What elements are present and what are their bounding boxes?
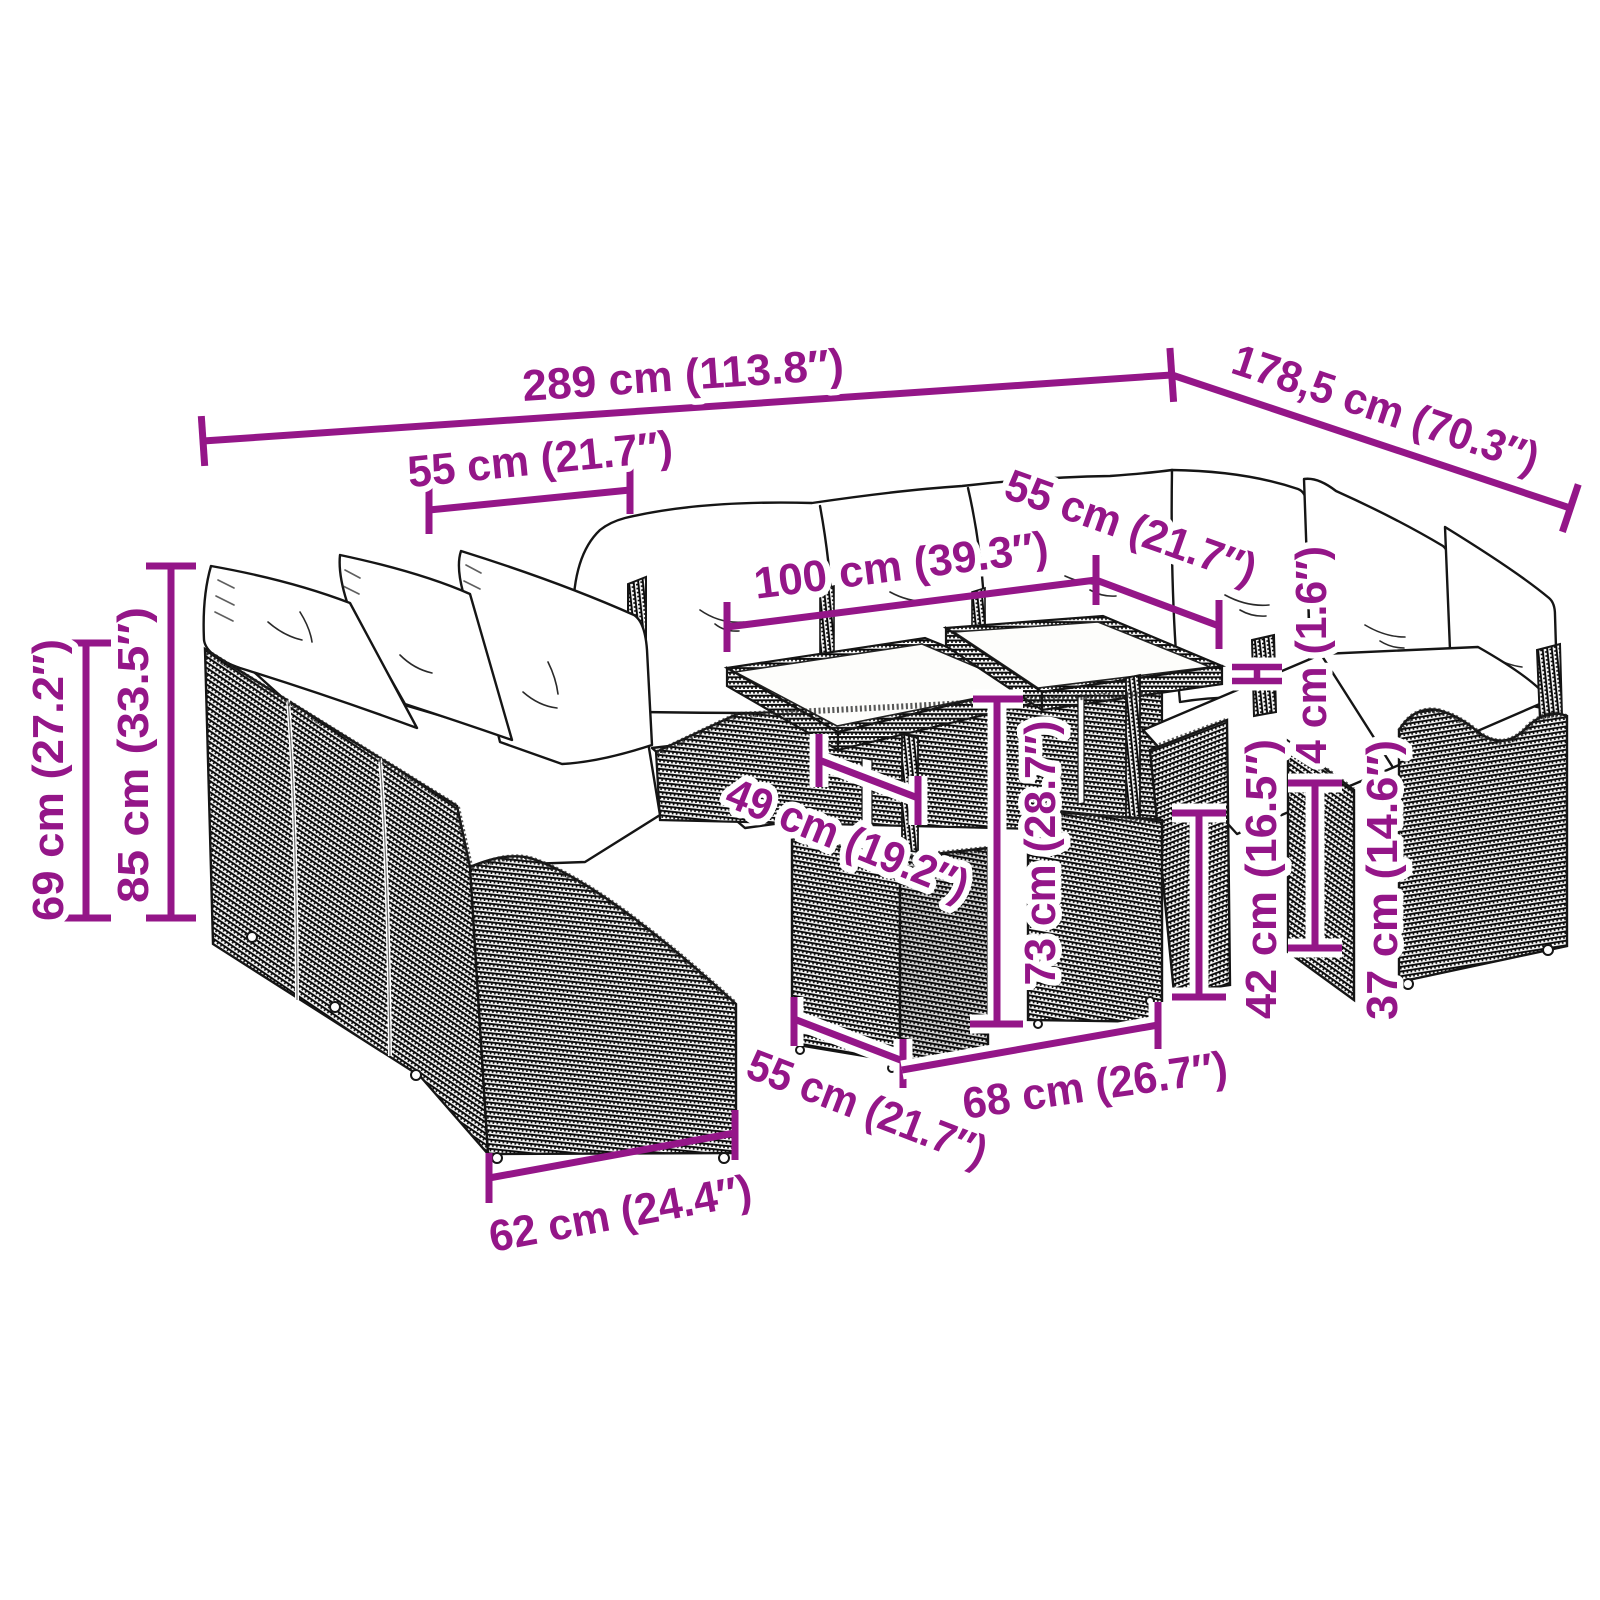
svg-text:73 cm (28.7″): 73 cm (28.7″) <box>1016 721 1065 986</box>
svg-text:37 cm (14.6″): 37 cm (14.6″) <box>1358 740 1407 1020</box>
svg-text:69 cm (27.2″): 69 cm (27.2″) <box>24 639 73 921</box>
svg-text:85 cm (33.5″): 85 cm (33.5″) <box>109 607 158 903</box>
svg-text:4 cm (1.6″): 4 cm (1.6″) <box>1287 546 1336 764</box>
svg-text:42 cm (16.5″): 42 cm (16.5″) <box>1237 739 1286 1019</box>
